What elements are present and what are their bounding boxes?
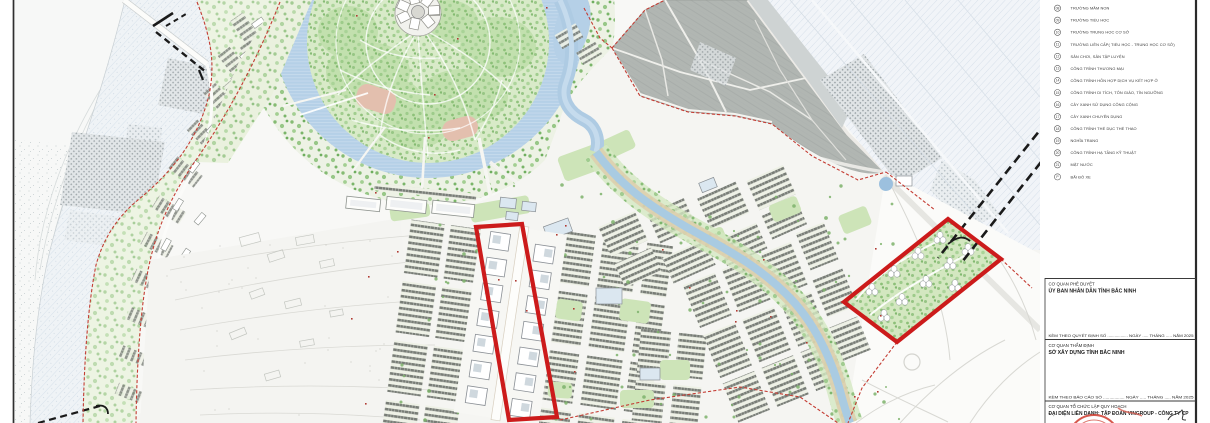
- svg-text:19: 19: [1056, 139, 1060, 143]
- svg-text:CÂY XANH CHUYÊN DỤNG: CÂY XANH CHUYÊN DỤNG: [1071, 114, 1123, 119]
- svg-text:08: 08: [1056, 6, 1060, 10]
- svg-text:CƠ QUAN THẨM ĐỊNH: CƠ QUAN THẨM ĐỊNH: [1049, 343, 1094, 348]
- svg-text:CÔNG TRÌNH HẠ TẦNG KỸ THUẬT: CÔNG TRÌNH HẠ TẦNG KỸ THUẬT: [1071, 150, 1137, 155]
- svg-text:ĐẠI DIỆN LIÊN DANH: TẬP ĐOÀN V: ĐẠI DIỆN LIÊN DANH: TẬP ĐOÀN VINGROUP - …: [1049, 409, 1190, 417]
- svg-text:18: 18: [1056, 127, 1060, 131]
- svg-text:15: 15: [1056, 91, 1060, 95]
- svg-text:TRƯỜNG MẦM NON: TRƯỜNG MẦM NON: [1071, 6, 1110, 11]
- svg-text:10: 10: [1056, 31, 1060, 35]
- svg-text:BÃI ĐỖ XE: BÃI ĐỖ XE: [1071, 174, 1092, 179]
- svg-text:14: 14: [1056, 79, 1060, 83]
- svg-text:12: 12: [1056, 55, 1060, 59]
- svg-text:20: 20: [1056, 151, 1060, 155]
- svg-text:CÔNG TRÌNH THƯƠNG MẠI: CÔNG TRÌNH THƯƠNG MẠI: [1071, 66, 1124, 71]
- svg-text:TRƯỜNG TIỂU HỌC: TRƯỜNG TIỂU HỌC: [1071, 18, 1110, 23]
- svg-text:17: 17: [1056, 115, 1060, 119]
- svg-text:KÈM THEO QUYẾT ĐỊNH SỐ .......: KÈM THEO QUYẾT ĐỊNH SỐ .................…: [1049, 333, 1195, 338]
- svg-text:09: 09: [1056, 18, 1060, 22]
- svg-text:CÔNG TRÌNH DI TÍCH, TÔN GIÁO,: CÔNG TRÌNH DI TÍCH, TÔN GIÁO, TÍN NGƯỠNG: [1071, 90, 1164, 95]
- svg-text:SỞ XÂY DỰNG TỈNH BẮC NINH: SỞ XÂY DỰNG TỈNH BẮC NINH: [1049, 348, 1125, 356]
- svg-text:CÔNG TRÌNH THỂ DỤC THỂ THAO: CÔNG TRÌNH THỂ DỤC THỂ THAO: [1071, 126, 1137, 131]
- svg-text:11: 11: [1056, 43, 1060, 47]
- svg-text:MẶT NƯỚC: MẶT NƯỚC: [1071, 162, 1093, 167]
- svg-text:CƠ QUAN TỔ CHỨC LẬP QUY HOẠCH: CƠ QUAN TỔ CHỨC LẬP QUY HOẠCH: [1049, 404, 1127, 409]
- svg-text:CÔNG TRÌNH HỖN HỢP DỊCH VỤ KẾT: CÔNG TRÌNH HỖN HỢP DỊCH VỤ KẾT HỢP Ở: [1071, 78, 1159, 83]
- svg-text:TRƯỜNG LIÊN CẤP( TIỂU HỌC - TR: TRƯỜNG LIÊN CẤP( TIỂU HỌC - TRUNG HỌC CƠ…: [1071, 42, 1176, 47]
- svg-text:CÂY XANH SỬ DỤNG CÔNG CỘNG: CÂY XANH SỬ DỤNG CÔNG CỘNG: [1071, 102, 1138, 107]
- svg-text:13: 13: [1056, 67, 1060, 71]
- svg-text:NGHĨA TRANG: NGHĨA TRANG: [1071, 138, 1099, 143]
- svg-text:16: 16: [1056, 103, 1060, 107]
- svg-text:KÈM THEO BÁO CÁO SỐ ..........: KÈM THEO BÁO CÁO SỐ ................. NG…: [1049, 395, 1195, 400]
- svg-text:ỦY BAN NHÂN DÂN TỈNH BẮC NINH: ỦY BAN NHÂN DÂN TỈNH BẮC NINH: [1049, 287, 1137, 295]
- svg-text:SÂN CHƠI, SÂN TẬP LUYỆN: SÂN CHƠI, SÂN TẬP LUYỆN: [1071, 54, 1125, 59]
- svg-text:21: 21: [1056, 163, 1060, 167]
- svg-text:TRƯỜNG TRUNG HỌC CƠ SỞ: TRƯỜNG TRUNG HỌC CƠ SỞ: [1071, 30, 1130, 35]
- svg-text:CƠ QUAN PHÊ DUYỆT: CƠ QUAN PHÊ DUYỆT: [1049, 282, 1096, 287]
